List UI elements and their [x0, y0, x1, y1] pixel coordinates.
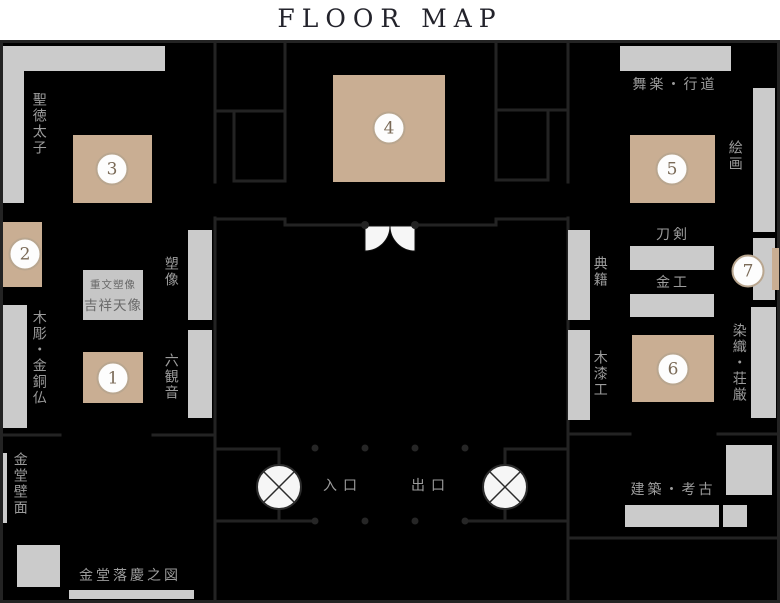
note-box: 重文塑像 吉祥天像 [83, 270, 143, 320]
wall-panel [751, 307, 776, 418]
wall-panel [630, 246, 714, 270]
wall-panel [753, 88, 775, 232]
marker-5: 5 [656, 153, 689, 186]
label-bugaku-gyodo: 舞楽・行道 [595, 76, 755, 93]
label-sozo: 塑像 [163, 256, 180, 288]
note-line-1: 重文塑像 [90, 277, 136, 292]
note-line-2: 吉祥天像 [84, 294, 142, 314]
entrance-pillar-icon [257, 465, 301, 509]
marker-6: 6 [657, 353, 690, 386]
floor-map-page: FLOOR MAP [0, 0, 780, 603]
exhibit-zone-7-strip [772, 248, 779, 290]
wall-panel [723, 505, 747, 527]
wall-panel [568, 230, 590, 320]
label-tenseki: 典籍 [592, 256, 609, 288]
page-title: FLOOR MAP [0, 0, 780, 40]
label-rokkannon: 六観音 [163, 353, 180, 401]
wall-panel [69, 590, 194, 599]
wall-panel [3, 46, 24, 203]
marker-3: 3 [96, 153, 129, 186]
wall-panel [3, 453, 7, 523]
label-kaiga: 絵画 [727, 140, 744, 172]
hall-north-wall [215, 219, 568, 225]
room-walls-top-left [215, 43, 285, 182]
marker-2: 2 [9, 238, 42, 271]
room-walls-top-right [496, 43, 568, 182]
label-token: 刀剣 [593, 226, 753, 243]
wall-panel [3, 46, 165, 71]
wall-panel [188, 330, 212, 418]
double-door-icon [361, 221, 419, 251]
exit-pillar-icon [483, 465, 527, 509]
label-kinko: 金工 [593, 274, 753, 291]
wall-panel [188, 230, 212, 320]
wall-panel [3, 305, 27, 428]
wall-panel [620, 46, 731, 71]
wall-panel [630, 294, 714, 317]
label-kondo-rakkei: 金堂落慶之図 [40, 567, 220, 584]
wall-panel [625, 505, 719, 527]
wall-panel [568, 330, 590, 420]
label-entrance: 入口 [303, 477, 383, 494]
label-exit: 出口 [391, 477, 471, 494]
floor-map: 1 2 3 4 5 6 7 重文塑像 吉祥天像 聖徳太子 木彫・金銅仏 金堂壁面… [0, 40, 780, 603]
label-shotoku-taishi: 聖徳太子 [31, 92, 48, 156]
label-senshoku-shogon: 染織・荘厳 [731, 323, 748, 403]
label-mokushikko: 木漆工 [592, 350, 609, 398]
marker-1: 1 [97, 362, 130, 395]
label-kenchiku-koko: 建築・考古 [593, 481, 753, 498]
label-kondo-hekimen: 金堂壁面 [12, 452, 29, 516]
label-mokucho-kondobutsu: 木彫・金銅仏 [31, 310, 48, 406]
marker-4: 4 [373, 112, 406, 145]
